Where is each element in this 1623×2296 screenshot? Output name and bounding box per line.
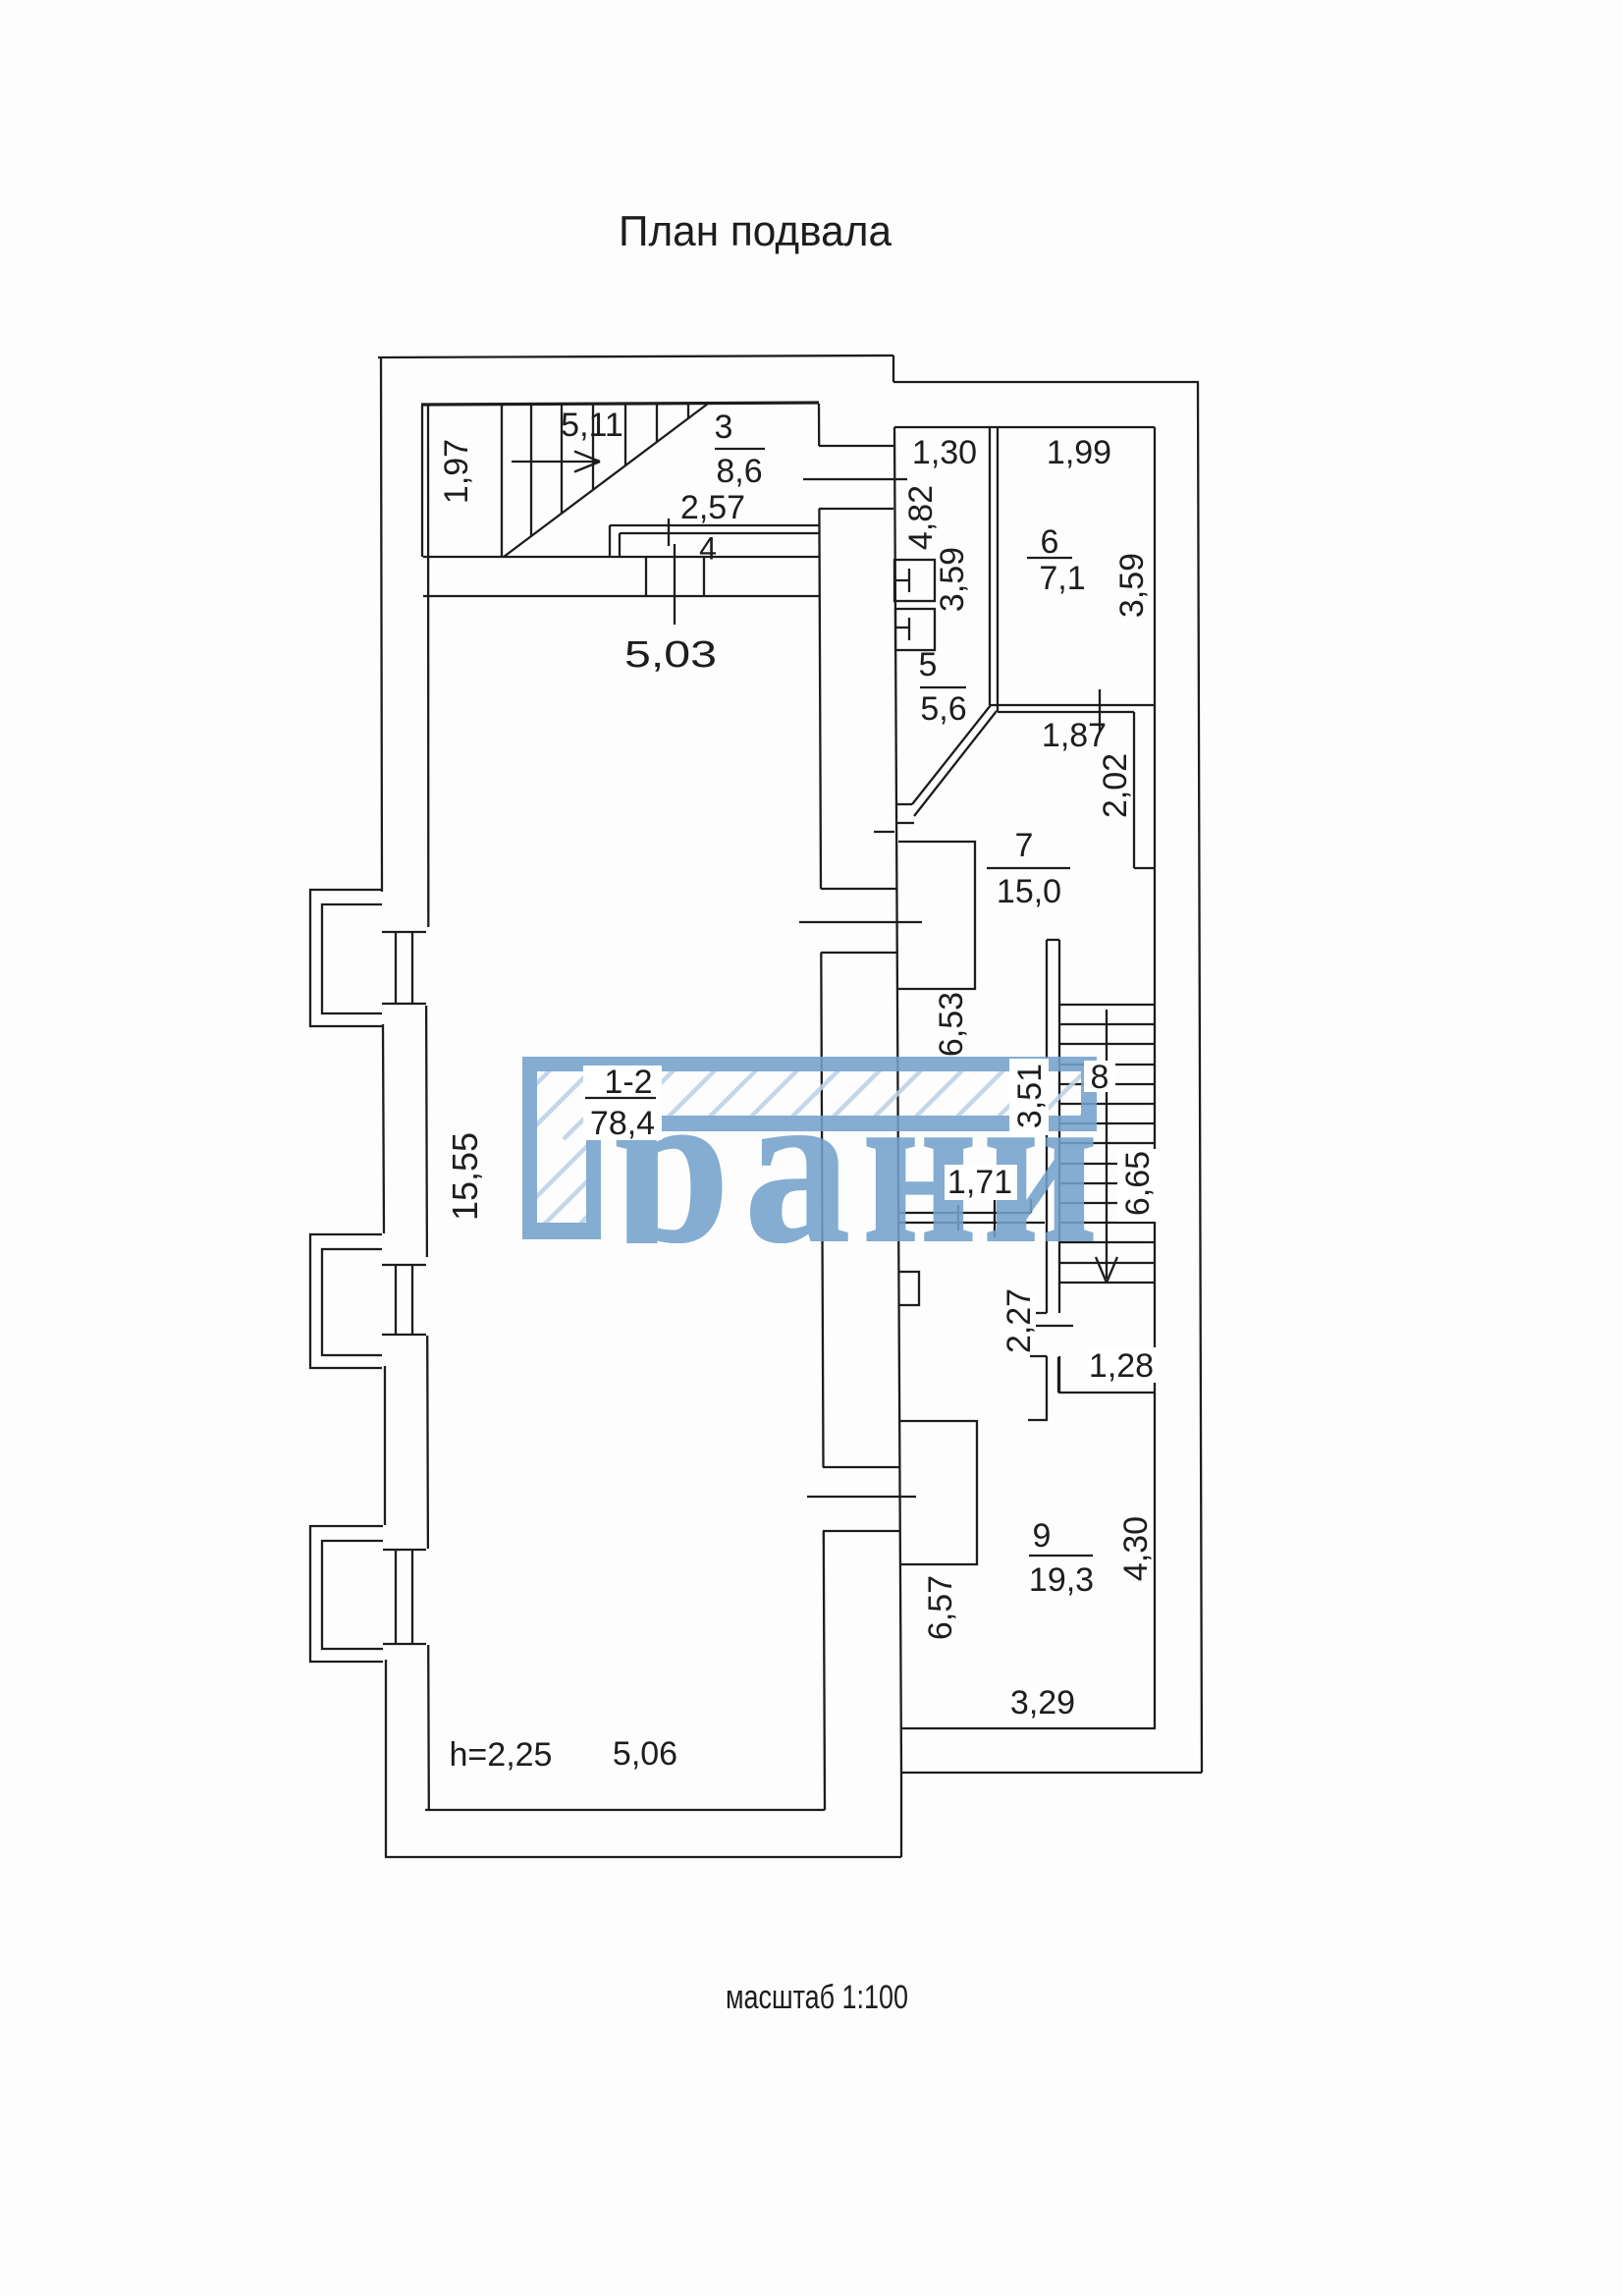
svg-text:3,51: 3,51 — [1011, 1064, 1049, 1128]
svg-text:78,4: 78,4 — [590, 1105, 655, 1142]
svg-text:5,06: 5,06 — [613, 1735, 677, 1773]
svg-text:8,6: 8,6 — [716, 453, 762, 490]
svg-text:7,1: 7,1 — [1039, 560, 1085, 597]
svg-text:4: 4 — [699, 531, 717, 567]
svg-text:1,97: 1,97 — [438, 439, 475, 504]
svg-text:План подвала: План подвала — [619, 207, 893, 255]
svg-text:1,87: 1,87 — [1042, 717, 1107, 754]
svg-text:5,03: 5,03 — [624, 634, 717, 676]
svg-text:3,59: 3,59 — [1113, 553, 1151, 618]
svg-text:9: 9 — [1033, 1517, 1052, 1555]
svg-text:1-2: 1-2 — [604, 1064, 652, 1101]
svg-text:15,0: 15,0 — [997, 873, 1061, 910]
svg-text:3,59: 3,59 — [934, 547, 971, 612]
svg-text:1,99: 1,99 — [1047, 434, 1111, 471]
svg-text:19,3: 19,3 — [1029, 1561, 1094, 1599]
svg-text:4,82: 4,82 — [902, 485, 940, 550]
svg-text:1,71: 1,71 — [947, 1164, 1012, 1201]
svg-text:6,57: 6,57 — [922, 1575, 959, 1640]
svg-text:5: 5 — [919, 646, 938, 683]
svg-text:2,02: 2,02 — [1097, 753, 1134, 818]
svg-text:1,28: 1,28 — [1089, 1347, 1154, 1385]
svg-text:5,6: 5,6 — [920, 690, 966, 728]
svg-text:3,29: 3,29 — [1010, 1684, 1075, 1722]
svg-text:3: 3 — [715, 409, 733, 446]
svg-text:h=2,25: h=2,25 — [450, 1736, 553, 1774]
svg-text:масштаб 1:100: масштаб 1:100 — [726, 1979, 908, 2016]
svg-text:7: 7 — [1015, 827, 1034, 864]
svg-text:15,55: 15,55 — [445, 1132, 485, 1221]
svg-text:5,11: 5,11 — [561, 407, 623, 444]
svg-text:6: 6 — [1041, 523, 1059, 561]
svg-text:4,30: 4,30 — [1117, 1516, 1155, 1581]
svg-text:2,27: 2,27 — [1001, 1288, 1038, 1353]
svg-text:1,30: 1,30 — [912, 434, 977, 471]
svg-text:8: 8 — [1091, 1059, 1109, 1096]
svg-text:2,57: 2,57 — [680, 489, 745, 526]
svg-text:6,53: 6,53 — [933, 992, 970, 1057]
svg-text:6,65: 6,65 — [1119, 1151, 1157, 1216]
